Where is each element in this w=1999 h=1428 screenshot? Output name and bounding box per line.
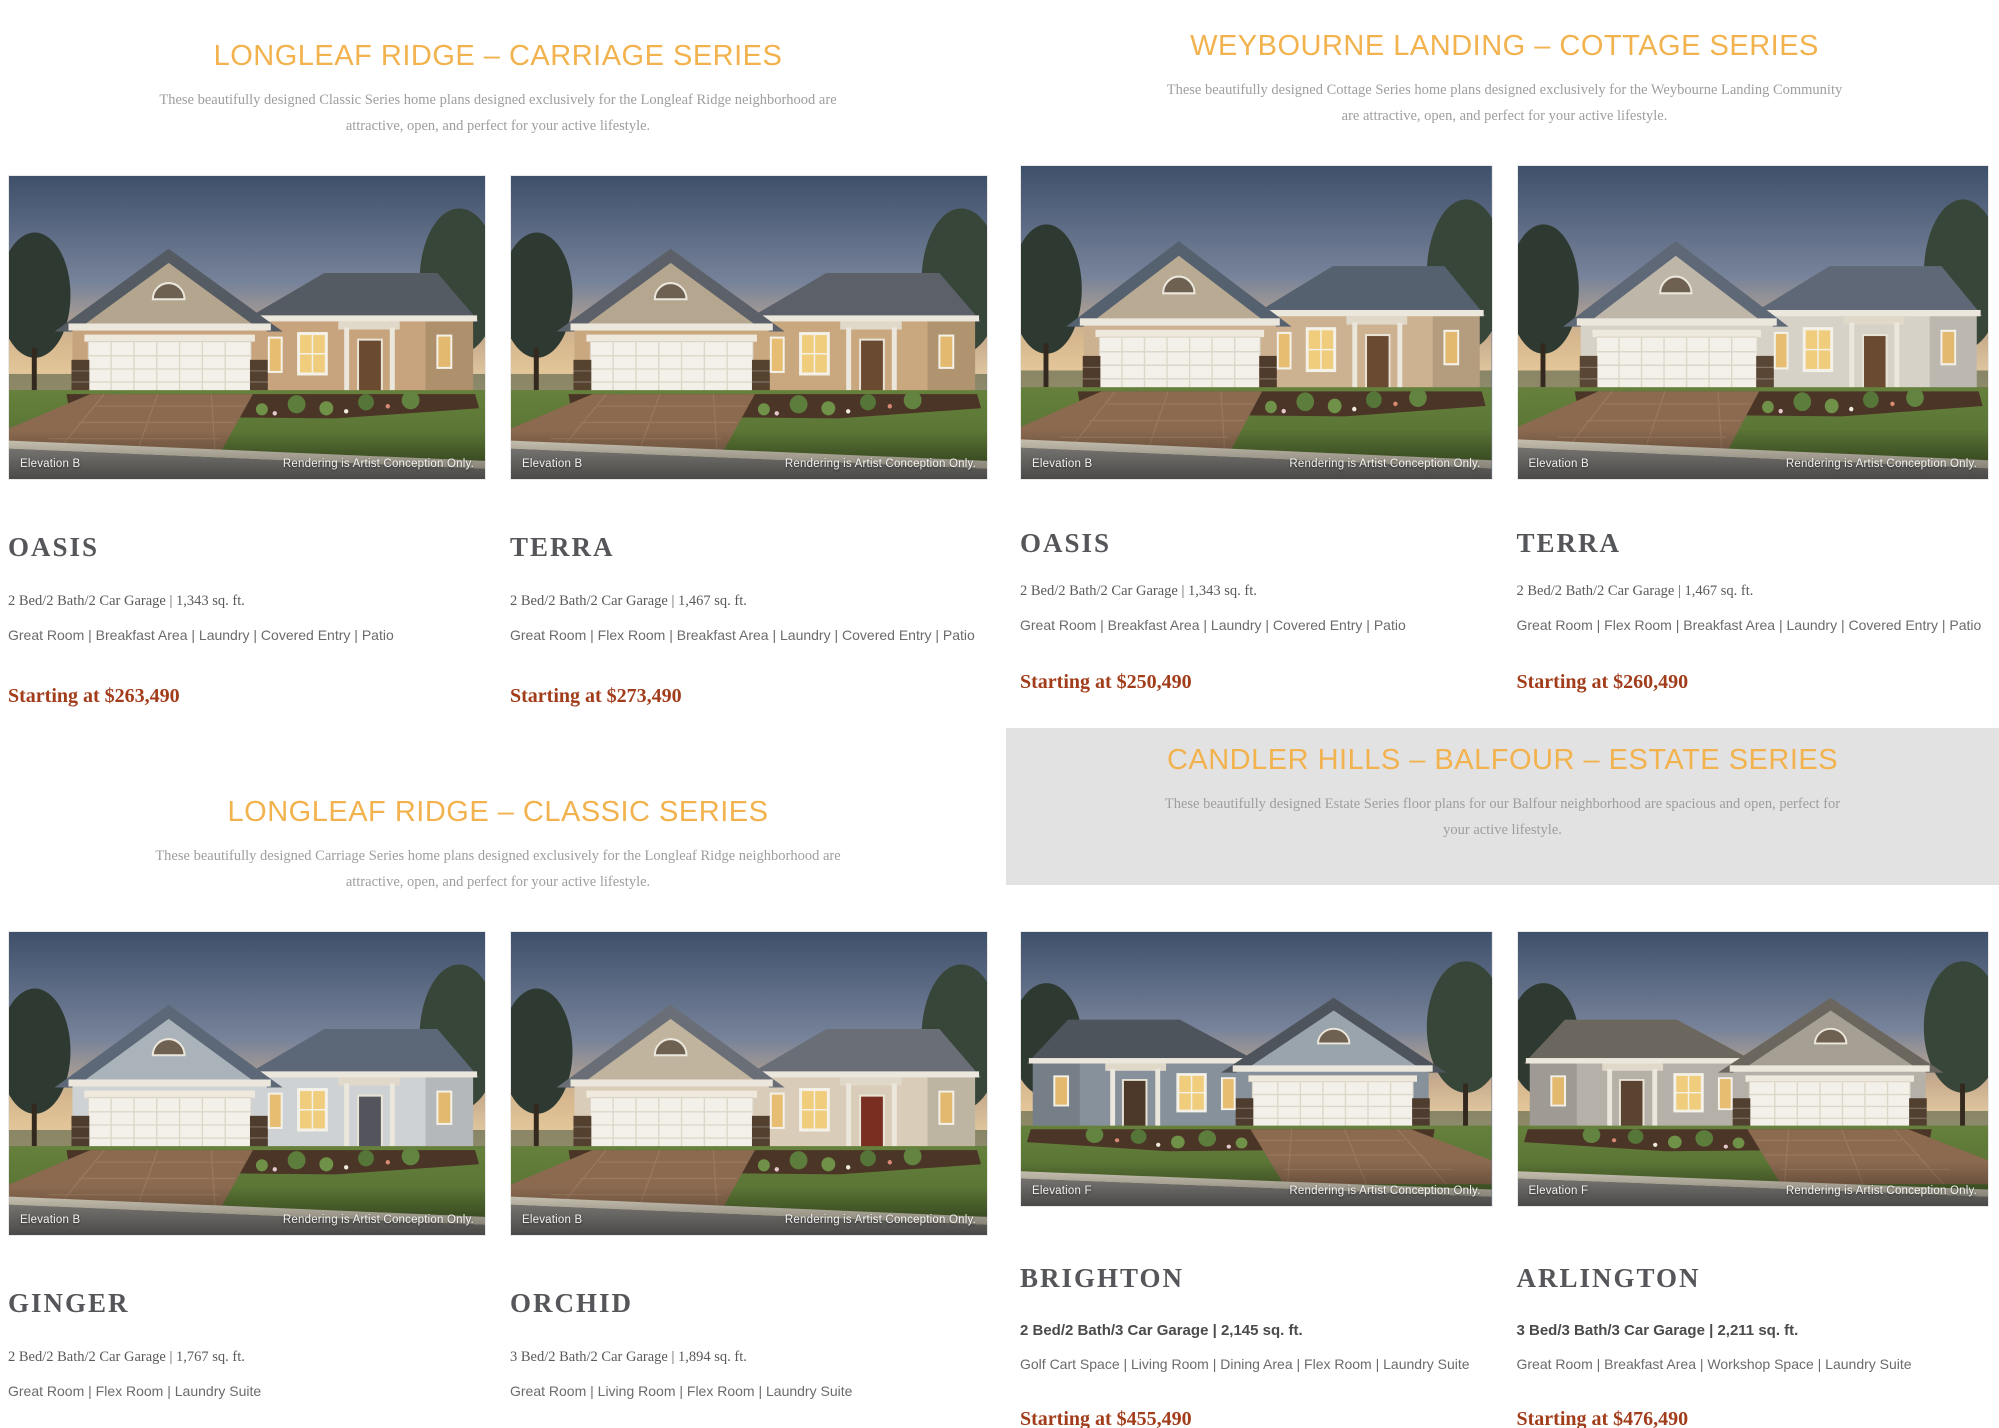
plan-card: Elevation BRendering is Artist Conceptio…: [1020, 165, 1493, 694]
elevation-label: Elevation B: [20, 1214, 80, 1226]
house-rendering: [1518, 166, 1989, 479]
elevation-label: Elevation F: [1032, 1185, 1092, 1197]
plan-image[interactable]: Elevation BRendering is Artist Conceptio…: [1020, 165, 1493, 480]
rendering-disclaimer: Rendering is Artist Conception Only.: [283, 1214, 474, 1226]
rendering-disclaimer: Rendering is Artist Conception Only.: [283, 458, 474, 470]
rendering-disclaimer: Rendering is Artist Conception Only.: [785, 1214, 976, 1226]
plan-cards-row: Elevation BRendering is Artist Conceptio…: [8, 931, 988, 1428]
plan-image[interactable]: Elevation FRendering is Artist Conceptio…: [1517, 931, 1990, 1207]
plan-image[interactable]: Elevation FRendering is Artist Conceptio…: [1020, 931, 1493, 1207]
section-description-line: These beautifully designed Cottage Serie…: [1020, 77, 1989, 103]
plan-price: Starting at $260,490: [1517, 671, 1990, 694]
rendering-disclaimer: Rendering is Artist Conception Only.: [1289, 1185, 1480, 1197]
house-rendering: [9, 176, 485, 479]
house-rendering: [1021, 166, 1492, 479]
plan-price: Starting at $476,490: [1517, 1408, 1990, 1428]
section-title: WEYBOURNE LANDING – COTTAGE SERIES: [1020, 30, 1989, 63]
section-title: CANDLER HILLS – BALFOUR – ESTATE SERIES: [1036, 744, 1969, 777]
section-description-line: are attractive, open, and perfect for yo…: [1020, 103, 1989, 129]
section-candler-hills-balfour-estate: CANDLER HILLS – BALFOUR – ESTATE SERIEST…: [1020, 728, 1989, 1428]
section-description-line: your active lifestyle.: [1036, 817, 1969, 843]
plan-specs: 2 Bed/2 Bath/2 Car Garage | 1,343 sq. ft…: [8, 593, 486, 610]
house-rendering: [1021, 932, 1492, 1206]
rendering-disclaimer: Rendering is Artist Conception Only.: [1786, 458, 1977, 470]
plan-specs: 2 Bed/2 Bath/2 Car Garage | 1,467 sq. ft…: [1517, 583, 1990, 600]
section-header: LONGLEAF RIDGE – CARRIAGE SERIESThese be…: [8, 40, 988, 139]
left-column: LONGLEAF RIDGE – CARRIAGE SERIESThese be…: [0, 0, 998, 1428]
plan-features: Great Room | Flex Room | Breakfast Area …: [510, 622, 988, 649]
elevation-label: Elevation F: [1529, 1185, 1589, 1197]
plan-card: Elevation BRendering is Artist Conceptio…: [510, 931, 988, 1428]
rendering-disclaimer: Rendering is Artist Conception Only.: [1289, 458, 1480, 470]
section-description-line: attractive, open, and perfect for your a…: [8, 113, 988, 139]
plan-specs: 2 Bed/2 Bath/2 Car Garage | 1,343 sq. ft…: [1020, 583, 1493, 600]
plan-card: Elevation BRendering is Artist Conceptio…: [510, 175, 988, 708]
house-rendering: [511, 932, 987, 1235]
house-rendering: [1518, 932, 1989, 1206]
plan-card: Elevation BRendering is Artist Conceptio…: [8, 175, 486, 708]
plan-specs: 2 Bed/2 Bath/2 Car Garage | 1,467 sq. ft…: [510, 593, 988, 610]
section-longleaf-ridge-classic: LONGLEAF RIDGE – CLASSIC SERIESThese bea…: [8, 796, 988, 1428]
elevation-label: Elevation B: [522, 1214, 582, 1226]
plan-name[interactable]: TERRA: [1517, 528, 1990, 559]
plan-image[interactable]: Elevation BRendering is Artist Conceptio…: [1517, 165, 1990, 480]
plan-features: Golf Cart Space | Living Room | Dining A…: [1020, 1351, 1493, 1378]
plan-features: Great Room | Breakfast Area | Laundry | …: [8, 622, 486, 649]
section-description-line: These beautifully designed Carriage Seri…: [8, 843, 988, 869]
house-rendering: [9, 932, 485, 1235]
plan-image[interactable]: Elevation BRendering is Artist Conceptio…: [8, 175, 486, 480]
section-header: LONGLEAF RIDGE – CLASSIC SERIESThese bea…: [8, 796, 988, 895]
house-rendering: [511, 176, 987, 479]
plan-features: Great Room | Living Room | Flex Room | L…: [510, 1378, 988, 1405]
elevation-label: Elevation B: [1529, 458, 1589, 470]
plan-price: Starting at $455,490: [1020, 1408, 1493, 1428]
plan-specs: 2 Bed/2 Bath/3 Car Garage | 2,145 sq. ft…: [1020, 1322, 1493, 1339]
plan-cards-row: Elevation BRendering is Artist Conceptio…: [1020, 165, 1989, 694]
elevation-label: Elevation B: [20, 458, 80, 470]
plan-features: Great Room | Flex Room | Breakfast Area …: [1517, 612, 1990, 639]
plan-name[interactable]: BRIGHTON: [1020, 1263, 1493, 1294]
plan-name[interactable]: ARLINGTON: [1517, 1263, 1990, 1294]
plan-price: Starting at $250,490: [1020, 671, 1493, 694]
rendering-disclaimer: Rendering is Artist Conception Only.: [1786, 1185, 1977, 1197]
plan-name[interactable]: OASIS: [8, 532, 486, 563]
plan-specs: 3 Bed/3 Bath/3 Car Garage | 2,211 sq. ft…: [1517, 1322, 1990, 1339]
plan-name[interactable]: GINGER: [8, 1288, 486, 1319]
plan-image[interactable]: Elevation BRendering is Artist Conceptio…: [8, 931, 486, 1236]
rendering-disclaimer: Rendering is Artist Conception Only.: [785, 458, 976, 470]
plan-name[interactable]: OASIS: [1020, 528, 1493, 559]
section-description-line: These beautifully designed Estate Series…: [1036, 791, 1969, 817]
section-header: WEYBOURNE LANDING – COTTAGE SERIESThese …: [1020, 30, 1989, 129]
section-title: LONGLEAF RIDGE – CLASSIC SERIES: [8, 796, 988, 829]
plan-features: Great Room | Flex Room | Laundry Suite: [8, 1378, 486, 1405]
section-weybourne-landing-cottage: WEYBOURNE LANDING – COTTAGE SERIESThese …: [1020, 30, 1989, 694]
plan-name[interactable]: TERRA: [510, 532, 988, 563]
right-column: WEYBOURNE LANDING – COTTAGE SERIESThese …: [998, 0, 1999, 1428]
plan-image[interactable]: Elevation BRendering is Artist Conceptio…: [510, 175, 988, 480]
plan-price: Starting at $273,490: [510, 685, 988, 708]
page: LONGLEAF RIDGE – CARRIAGE SERIESThese be…: [0, 0, 1999, 1428]
plan-price: Starting at $263,490: [8, 685, 486, 708]
plan-card: Elevation FRendering is Artist Conceptio…: [1020, 931, 1493, 1428]
plan-card: Elevation BRendering is Artist Conceptio…: [1517, 165, 1990, 694]
plan-card: Elevation FRendering is Artist Conceptio…: [1517, 931, 1990, 1428]
section-title: LONGLEAF RIDGE – CARRIAGE SERIES: [8, 40, 988, 73]
elevation-label: Elevation B: [522, 458, 582, 470]
plan-cards-row: Elevation FRendering is Artist Conceptio…: [1020, 931, 1989, 1428]
plan-features: Great Room | Breakfast Area | Laundry | …: [1020, 612, 1493, 639]
plan-specs: 2 Bed/2 Bath/2 Car Garage | 1,767 sq. ft…: [8, 1349, 486, 1366]
section-description-line: These beautifully designed Classic Serie…: [8, 87, 988, 113]
plan-cards-row: Elevation BRendering is Artist Conceptio…: [8, 175, 988, 708]
section-description-line: attractive, open, and perfect for your a…: [8, 869, 988, 895]
plan-features: Great Room | Breakfast Area | Workshop S…: [1517, 1351, 1990, 1378]
section-header: CANDLER HILLS – BALFOUR – ESTATE SERIEST…: [1006, 728, 1999, 885]
plan-image[interactable]: Elevation BRendering is Artist Conceptio…: [510, 931, 988, 1236]
section-longleaf-ridge-carriage: LONGLEAF RIDGE – CARRIAGE SERIESThese be…: [8, 40, 988, 708]
plan-name[interactable]: ORCHID: [510, 1288, 988, 1319]
plan-card: Elevation BRendering is Artist Conceptio…: [8, 931, 486, 1428]
elevation-label: Elevation B: [1032, 458, 1092, 470]
plan-specs: 3 Bed/2 Bath/2 Car Garage | 1,894 sq. ft…: [510, 1349, 988, 1366]
